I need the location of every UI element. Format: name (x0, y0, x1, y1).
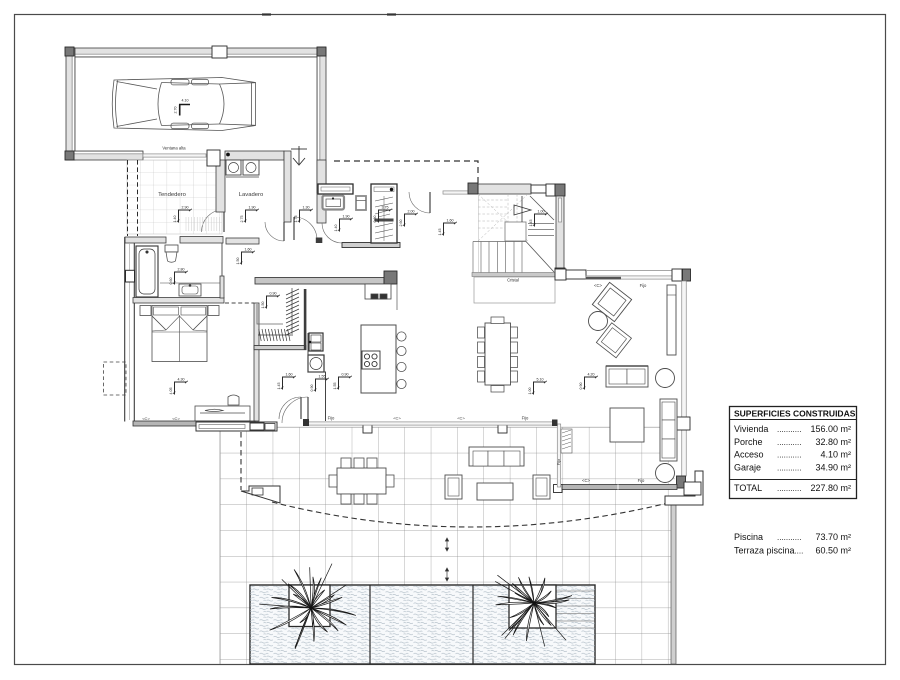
svg-text:73.70 m²: 73.70 m² (815, 532, 851, 542)
svg-text:...........: ........... (777, 438, 801, 447)
svg-text:Garaje: Garaje (734, 463, 761, 473)
svg-text:4.10 m²: 4.10 m² (820, 450, 851, 460)
svg-text:4.20: 4.20 (588, 373, 595, 377)
svg-text:1.45: 1.45 (529, 220, 533, 227)
svg-text:1.55: 1.55 (333, 383, 337, 390)
svg-text:4.10: 4.10 (182, 99, 189, 103)
svg-text:<C>: <C> (393, 416, 401, 421)
svg-text:<C>: <C> (582, 478, 590, 483)
svg-text:...........: ........... (777, 533, 801, 542)
svg-text:<C>: <C> (457, 416, 465, 421)
svg-text:156.00 m²: 156.00 m² (810, 424, 851, 434)
svg-text:Terraza piscina: Terraza piscina (734, 546, 795, 556)
svg-text:0.90: 0.90 (579, 383, 583, 390)
svg-text:1.00: 1.00 (538, 210, 545, 214)
svg-text:Tendedero: Tendedero (158, 192, 187, 198)
svg-text:Fijo: Fijo (328, 416, 335, 421)
svg-text:Fijo: Fijo (522, 416, 529, 421)
svg-text:2.90: 2.90 (182, 206, 189, 210)
svg-text:SUPERFICIES CONSTRUIDAS: SUPERFICIES CONSTRUIDAS (734, 409, 856, 419)
svg-text:1.45: 1.45 (438, 229, 442, 236)
svg-text:4.30: 4.30 (178, 378, 185, 382)
svg-text:1.45: 1.45 (277, 383, 281, 390)
svg-text:0.90: 0.90 (342, 373, 349, 377)
svg-text:2.00: 2.00 (408, 210, 415, 214)
svg-text:1.40: 1.40 (173, 216, 177, 223)
svg-text:TOTAL: TOTAL (734, 483, 762, 493)
svg-text:...........: ........... (777, 451, 801, 460)
svg-text:Piscina: Piscina (734, 532, 763, 542)
svg-text:......: ...... (790, 547, 803, 556)
svg-text:Fijo: Fijo (640, 283, 647, 288)
svg-text:Cristal: Cristal (507, 278, 519, 283)
svg-text:2.70: 2.70 (174, 107, 178, 114)
svg-text:1.40: 1.40 (334, 225, 338, 232)
svg-text:1.55: 1.55 (319, 375, 326, 379)
svg-text:1.60: 1.60 (286, 373, 293, 377)
svg-text:1.75: 1.75 (294, 216, 298, 223)
svg-text:Lavadero: Lavadero (239, 192, 264, 198)
svg-text:5.10: 5.10 (537, 378, 544, 382)
svg-text:<C>: <C> (594, 283, 602, 288)
svg-text:0.60: 0.60 (373, 216, 377, 223)
svg-text:Vivienda: Vivienda (734, 424, 768, 434)
svg-text:Porche: Porche (734, 437, 763, 447)
svg-text:0.90: 0.90 (270, 292, 277, 296)
svg-text:Fijo: Fijo (556, 458, 561, 465)
svg-text:60.50 m²: 60.50 m² (815, 546, 851, 556)
svg-text:1.30: 1.30 (303, 206, 310, 210)
svg-text:2.80: 2.80 (178, 268, 185, 272)
svg-text:1.50: 1.50 (236, 258, 240, 265)
svg-text:1.90: 1.90 (343, 215, 350, 219)
svg-text:2.60: 2.60 (399, 220, 403, 227)
svg-text:3.75: 3.75 (382, 206, 389, 210)
svg-text:1.90: 1.90 (249, 206, 256, 210)
svg-text:1.60: 1.60 (447, 219, 454, 223)
svg-text:...........: ........... (777, 464, 801, 473)
svg-text:0.90: 0.90 (310, 385, 314, 392)
svg-text:227.80 m²: 227.80 m² (810, 483, 851, 493)
svg-text:34.90 m²: 34.90 m² (815, 463, 851, 473)
svg-text:1.60: 1.60 (245, 248, 252, 252)
svg-text:<C>: <C> (172, 416, 180, 421)
svg-text:...........: ........... (777, 484, 801, 493)
svg-text:...........: ........... (777, 425, 801, 434)
svg-text:<C>: <C> (142, 416, 150, 421)
svg-text:1.50: 1.50 (261, 302, 265, 309)
svg-text:Ventana alta: Ventana alta (162, 146, 186, 151)
svg-text:32.80 m²: 32.80 m² (815, 437, 851, 447)
svg-text:Fijo: Fijo (638, 478, 645, 483)
svg-text:1.00: 1.00 (528, 388, 532, 395)
svg-text:Acceso: Acceso (734, 450, 764, 460)
svg-text:0.60: 0.60 (169, 278, 173, 285)
svg-text:2.75: 2.75 (240, 216, 244, 223)
svg-text:4.05: 4.05 (169, 388, 173, 395)
